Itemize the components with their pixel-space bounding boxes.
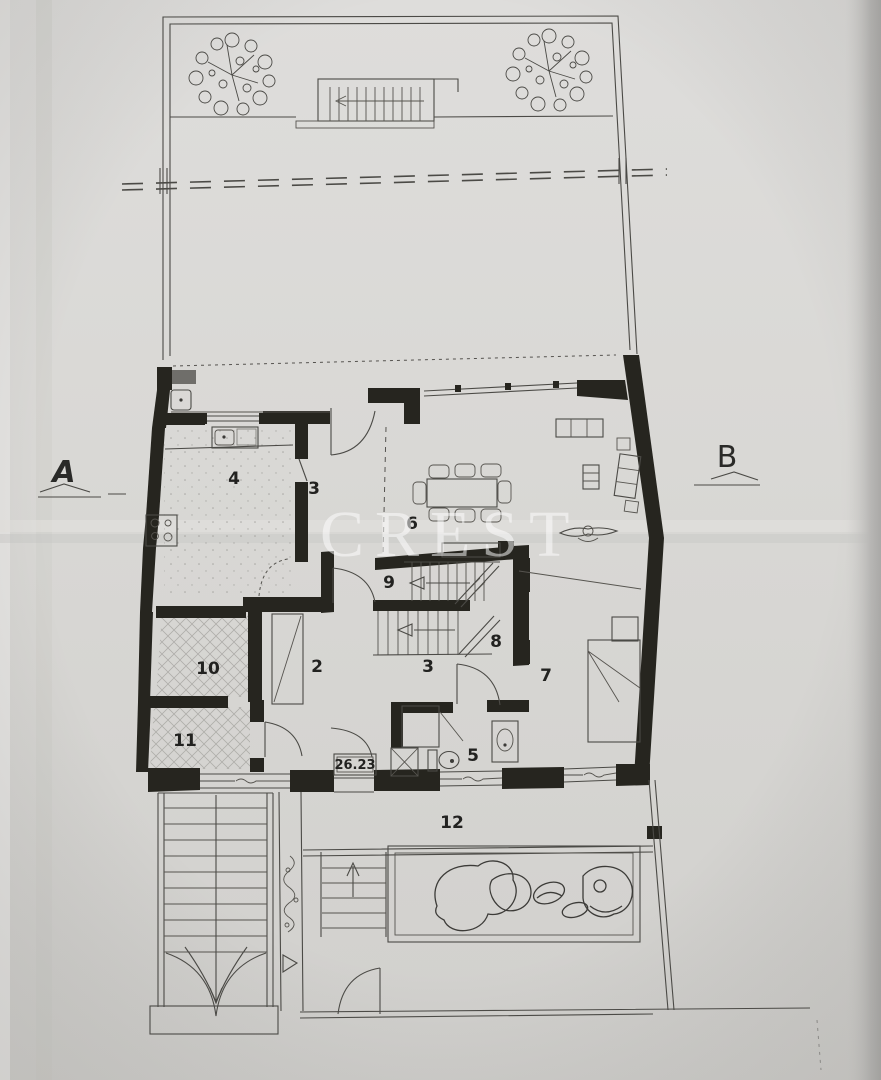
floor-plan-svg: 4 3 6 9 8 3 7 2 10 11 5 12 26.23 A B CRE… — [0, 0, 881, 1080]
room-label-store-upper: 10 — [196, 659, 220, 679]
room-label-hall-upper: 3 — [308, 479, 320, 499]
room-label-stair-mid: 8 — [490, 632, 502, 652]
scanned-floor-plan-page: 4 3 6 9 8 3 7 2 10 11 5 12 26.23 A B CRE… — [0, 0, 881, 1080]
watermark-text: CREST — [320, 498, 580, 571]
appliance-icon — [172, 370, 196, 384]
storeroom-10-floor-texture — [156, 613, 248, 697]
room-label-store-lower: 11 — [173, 731, 197, 751]
room-label-hall-lower: 2 — [311, 657, 323, 677]
area-label-box: 26.23 — [334, 754, 376, 775]
room-label-corridor: 3 — [422, 657, 434, 677]
room-label-lobby: 9 — [383, 573, 395, 593]
section-b-letter: B — [717, 440, 738, 475]
room-label-terrace: 12 — [440, 813, 464, 833]
room-label-kitchen: 4 — [228, 469, 240, 489]
room-label-bathroom: 5 — [467, 746, 479, 766]
room-label-bedroom: 7 — [540, 666, 552, 686]
storeroom-11-floor-texture — [150, 707, 250, 769]
kitchen-floor-texture — [164, 430, 293, 596]
area-value: 26.23 — [334, 758, 375, 773]
